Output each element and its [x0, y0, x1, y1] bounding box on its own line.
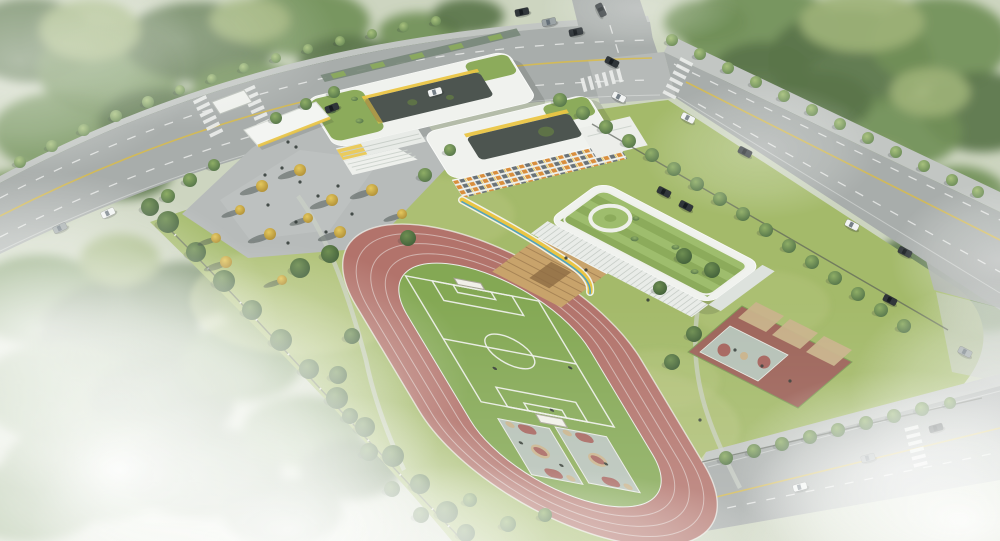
aerial-campus-rendering — [0, 0, 1000, 541]
haze-veil — [0, 0, 1000, 541]
scene-canvas — [0, 0, 1000, 541]
